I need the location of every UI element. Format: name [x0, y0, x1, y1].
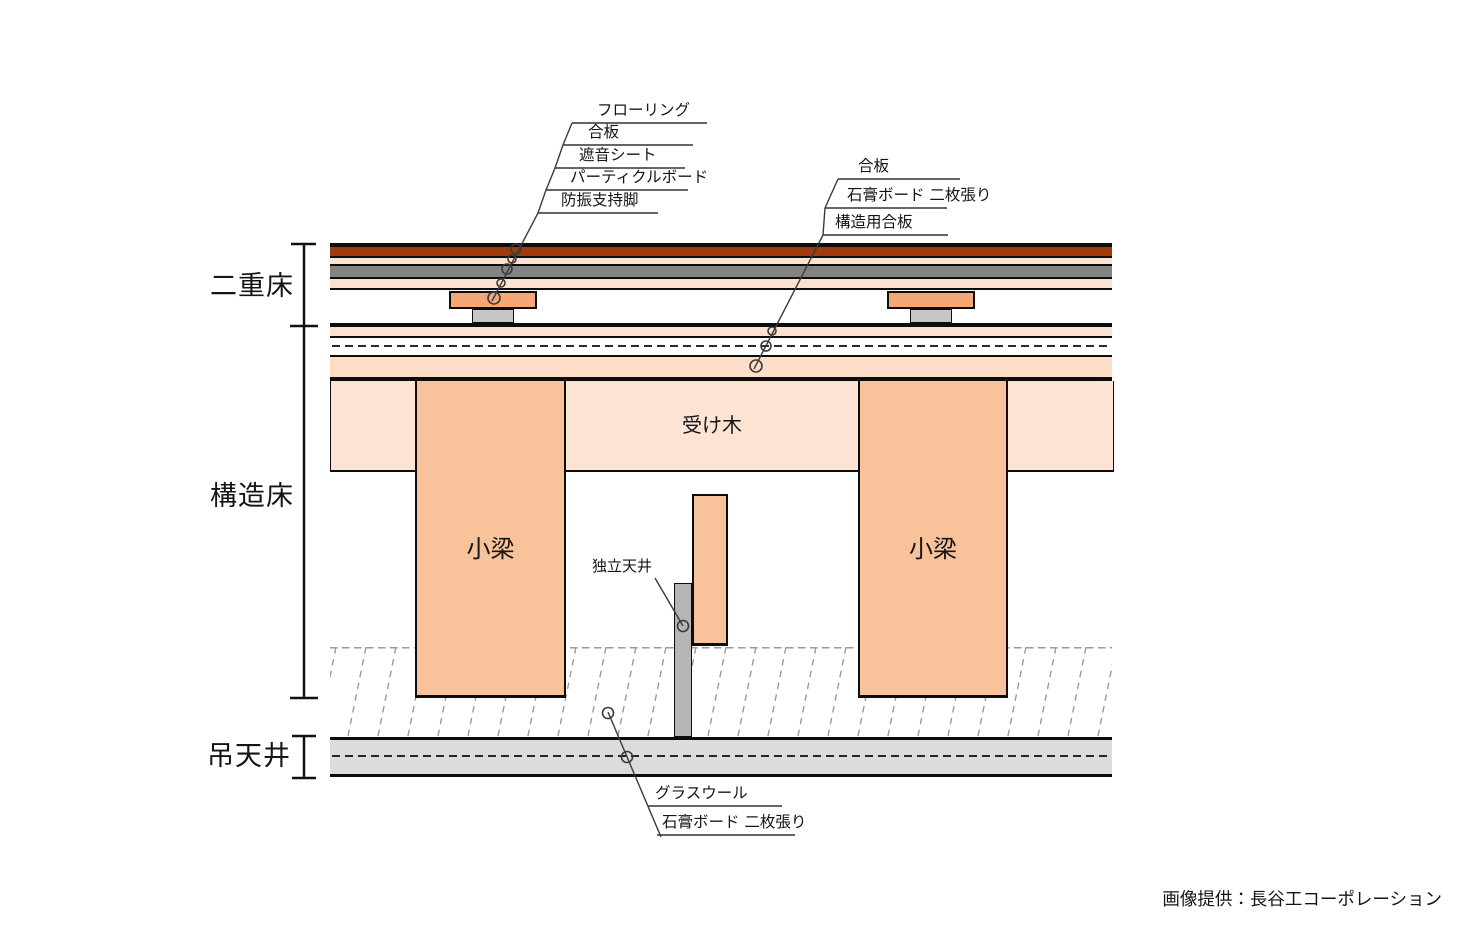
label-support-leg: 防振支持脚	[561, 190, 639, 210]
label-gypsum-double-right: 石膏ボード 二枚張り	[847, 185, 991, 205]
label-particle-board: パーティクルボード	[570, 167, 708, 187]
label-receiving-wood: 受け木	[566, 412, 858, 438]
floor-section-diagram: 二重床 構造床 吊天井 フローリング 合板 遮音シート パーティクルボード 防振…	[0, 0, 1470, 930]
label-structural-plywood: 構造用合板	[835, 212, 913, 232]
section-brackets	[290, 244, 318, 778]
label-plywood-right: 合板	[858, 156, 889, 176]
label-plywood: 合板	[588, 122, 619, 142]
label-glass-wool: グラスウール	[655, 783, 748, 803]
label-gypsum-double-bottom: 石膏ボード 二枚張り	[662, 812, 806, 832]
image-credit: 画像提供：長谷工コーポレーション	[1162, 890, 1442, 910]
label-flooring: フローリング	[597, 100, 690, 120]
label-sound-sheet: 遮音シート	[579, 145, 657, 165]
section-structural-floor: 構造床	[210, 482, 294, 512]
label-small-beam-right: 小梁	[858, 534, 1008, 564]
section-double-floor: 二重床	[210, 272, 294, 302]
label-small-beam-left: 小梁	[415, 534, 566, 564]
label-independent-ceiling: 独立天井	[592, 556, 652, 576]
section-suspended-ceiling: 吊天井	[207, 742, 291, 772]
